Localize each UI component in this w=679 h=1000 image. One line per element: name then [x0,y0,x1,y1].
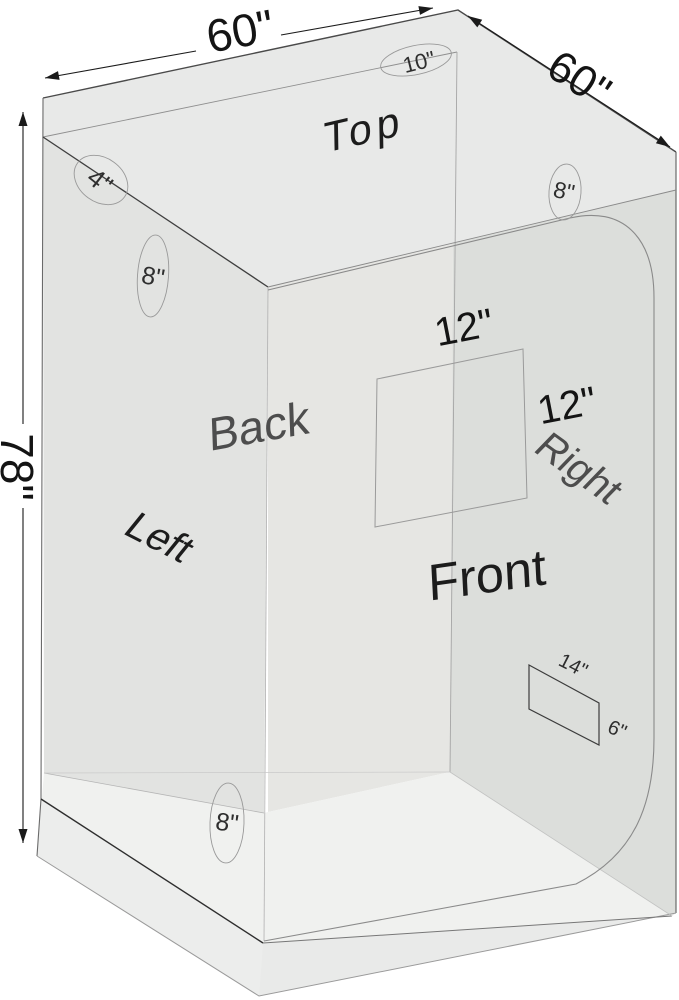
tent-dimension-diagram: 60" 60" 78" Top Back Left Front Right 12… [0,0,679,1000]
height-dimension-label: 78" [0,433,43,501]
front-wall-face [268,243,453,812]
diagram-canvas: 60" 60" 78" Top Back Left Front Right 12… [0,0,679,1000]
left-bottom-duct-label: 8" [214,808,240,839]
left-upper-duct-label: 8" [139,261,166,293]
